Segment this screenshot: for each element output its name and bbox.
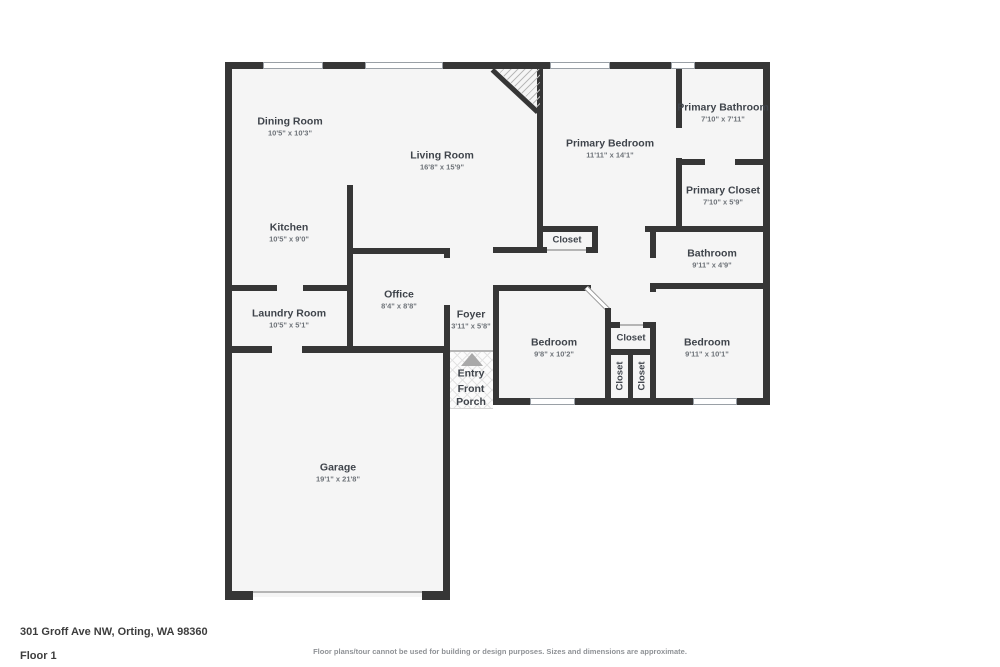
room-dims: 7'10" x 7'11" [677,115,769,125]
wall [347,248,450,254]
window [530,398,575,405]
room-name: Bedroom [531,337,577,350]
room-label-bathroom: Bathroom 9'11" x 4'9" [687,248,737,271]
wall [303,285,353,291]
room-label-primary-bedroom: Primary Bedroom 11'11" x 14'1" [566,138,654,161]
wall [225,62,232,600]
room-dims: 7'10" x 5'9" [686,198,760,208]
room-label-living: Living Room 16'8" x 15'9" [410,150,474,173]
room-label-kitchen: Kitchen 10'5" x 9'0" [269,222,309,245]
entry-arrow-icon [461,353,483,366]
room-dims: 19'1" x 21'8" [316,475,360,485]
entry-text: Entry [458,367,485,380]
room-dims: 16'8" x 15'9" [410,163,474,173]
entry-label: Entry [458,367,485,380]
wall [735,159,770,165]
wall [628,355,633,398]
floor-label: Floor 1 [20,650,57,662]
room-name: Laundry Room [252,308,326,321]
window [550,62,610,69]
window [263,62,323,69]
wall [493,285,499,405]
disclaimer-text: Floor plans/tour cannot be used for buil… [313,647,687,656]
room-name: Bedroom [684,337,730,350]
closet-label-primary-hall: Closet [552,235,581,246]
room-dims: 9'11" x 4'9" [687,261,737,271]
wall [444,248,450,258]
room-dims: 9'11" x 10'1" [684,350,730,360]
room-label-laundry: Laundry Room 10'5" x 5'1" [252,308,326,331]
room-name: Living Room [410,150,474,163]
room-name: Bathroom [687,248,737,261]
wall [537,226,598,232]
wall [347,185,353,352]
room-name: Kitchen [269,222,309,235]
room-name: Primary Bedroom [566,138,654,151]
room-dims: 11'11" x 14'1" [566,151,654,161]
window [671,62,695,69]
closet-door [547,249,586,251]
front-door [450,350,493,352]
closet-label-block-left: Closet [615,361,626,390]
room-name: Foyer [451,309,490,322]
wall [650,226,656,258]
wall [225,346,272,353]
room-label-bedroom-center: Bedroom 9'8" x 10'2" [531,337,577,360]
room-label-primary-bathroom: Primary Bathroom 7'10" x 7'11" [677,102,769,125]
wall [676,159,682,232]
wall [645,226,770,232]
wall [302,346,450,353]
room-label-primary-closet: Primary Closet 7'10" x 5'9" [686,185,760,208]
wall [611,322,620,328]
room-label-foyer: Foyer 3'11" x 5'8" [451,309,490,332]
room-dims: 10'5" x 5'1" [252,321,326,331]
room-dims: 8'4" x 8'8" [381,302,417,312]
wall [592,226,598,253]
wall [444,305,450,349]
window [693,398,737,405]
wall [537,247,547,253]
room-name: Office [381,289,417,302]
address-text: 301 Groff Ave NW, Orting, WA 98360 [20,626,208,638]
room-name: Garage [316,462,360,475]
wall [650,283,770,289]
closet-label-hall-block: Closet [616,333,645,344]
room-label-bedroom-right: Bedroom 9'11" x 10'1" [684,337,730,360]
room-name: Primary Bathroom [677,102,769,115]
wall [493,285,591,291]
front-porch-text: Front Porch [449,383,493,409]
room-label-garage: Garage 19'1" x 21'8" [316,462,360,485]
room-dims: 10'5" x 9'0" [269,235,309,245]
closet-door [620,324,643,326]
closet-label-block-right: Closet [637,361,648,390]
room-label-office: Office 8'4" x 8'8" [381,289,417,312]
room-dims: 10'5" x 10'3" [257,129,322,139]
room-dims: 3'11" x 5'8" [451,322,490,332]
garage-door [253,591,422,593]
room-dims: 9'8" x 10'2" [531,350,577,360]
wall [225,285,277,291]
wall [650,322,656,405]
room-label-dining: Dining Room 10'5" x 10'3" [257,116,322,139]
floor-plan-page: Dining Room 10'5" x 10'3" Living Room 16… [0,0,1000,667]
room-name: Primary Closet [686,185,760,198]
wall [493,247,540,253]
front-porch-label: Front Porch [449,383,493,409]
wall [225,591,253,600]
window [365,62,443,69]
wall [643,322,650,328]
room-name: Dining Room [257,116,322,129]
